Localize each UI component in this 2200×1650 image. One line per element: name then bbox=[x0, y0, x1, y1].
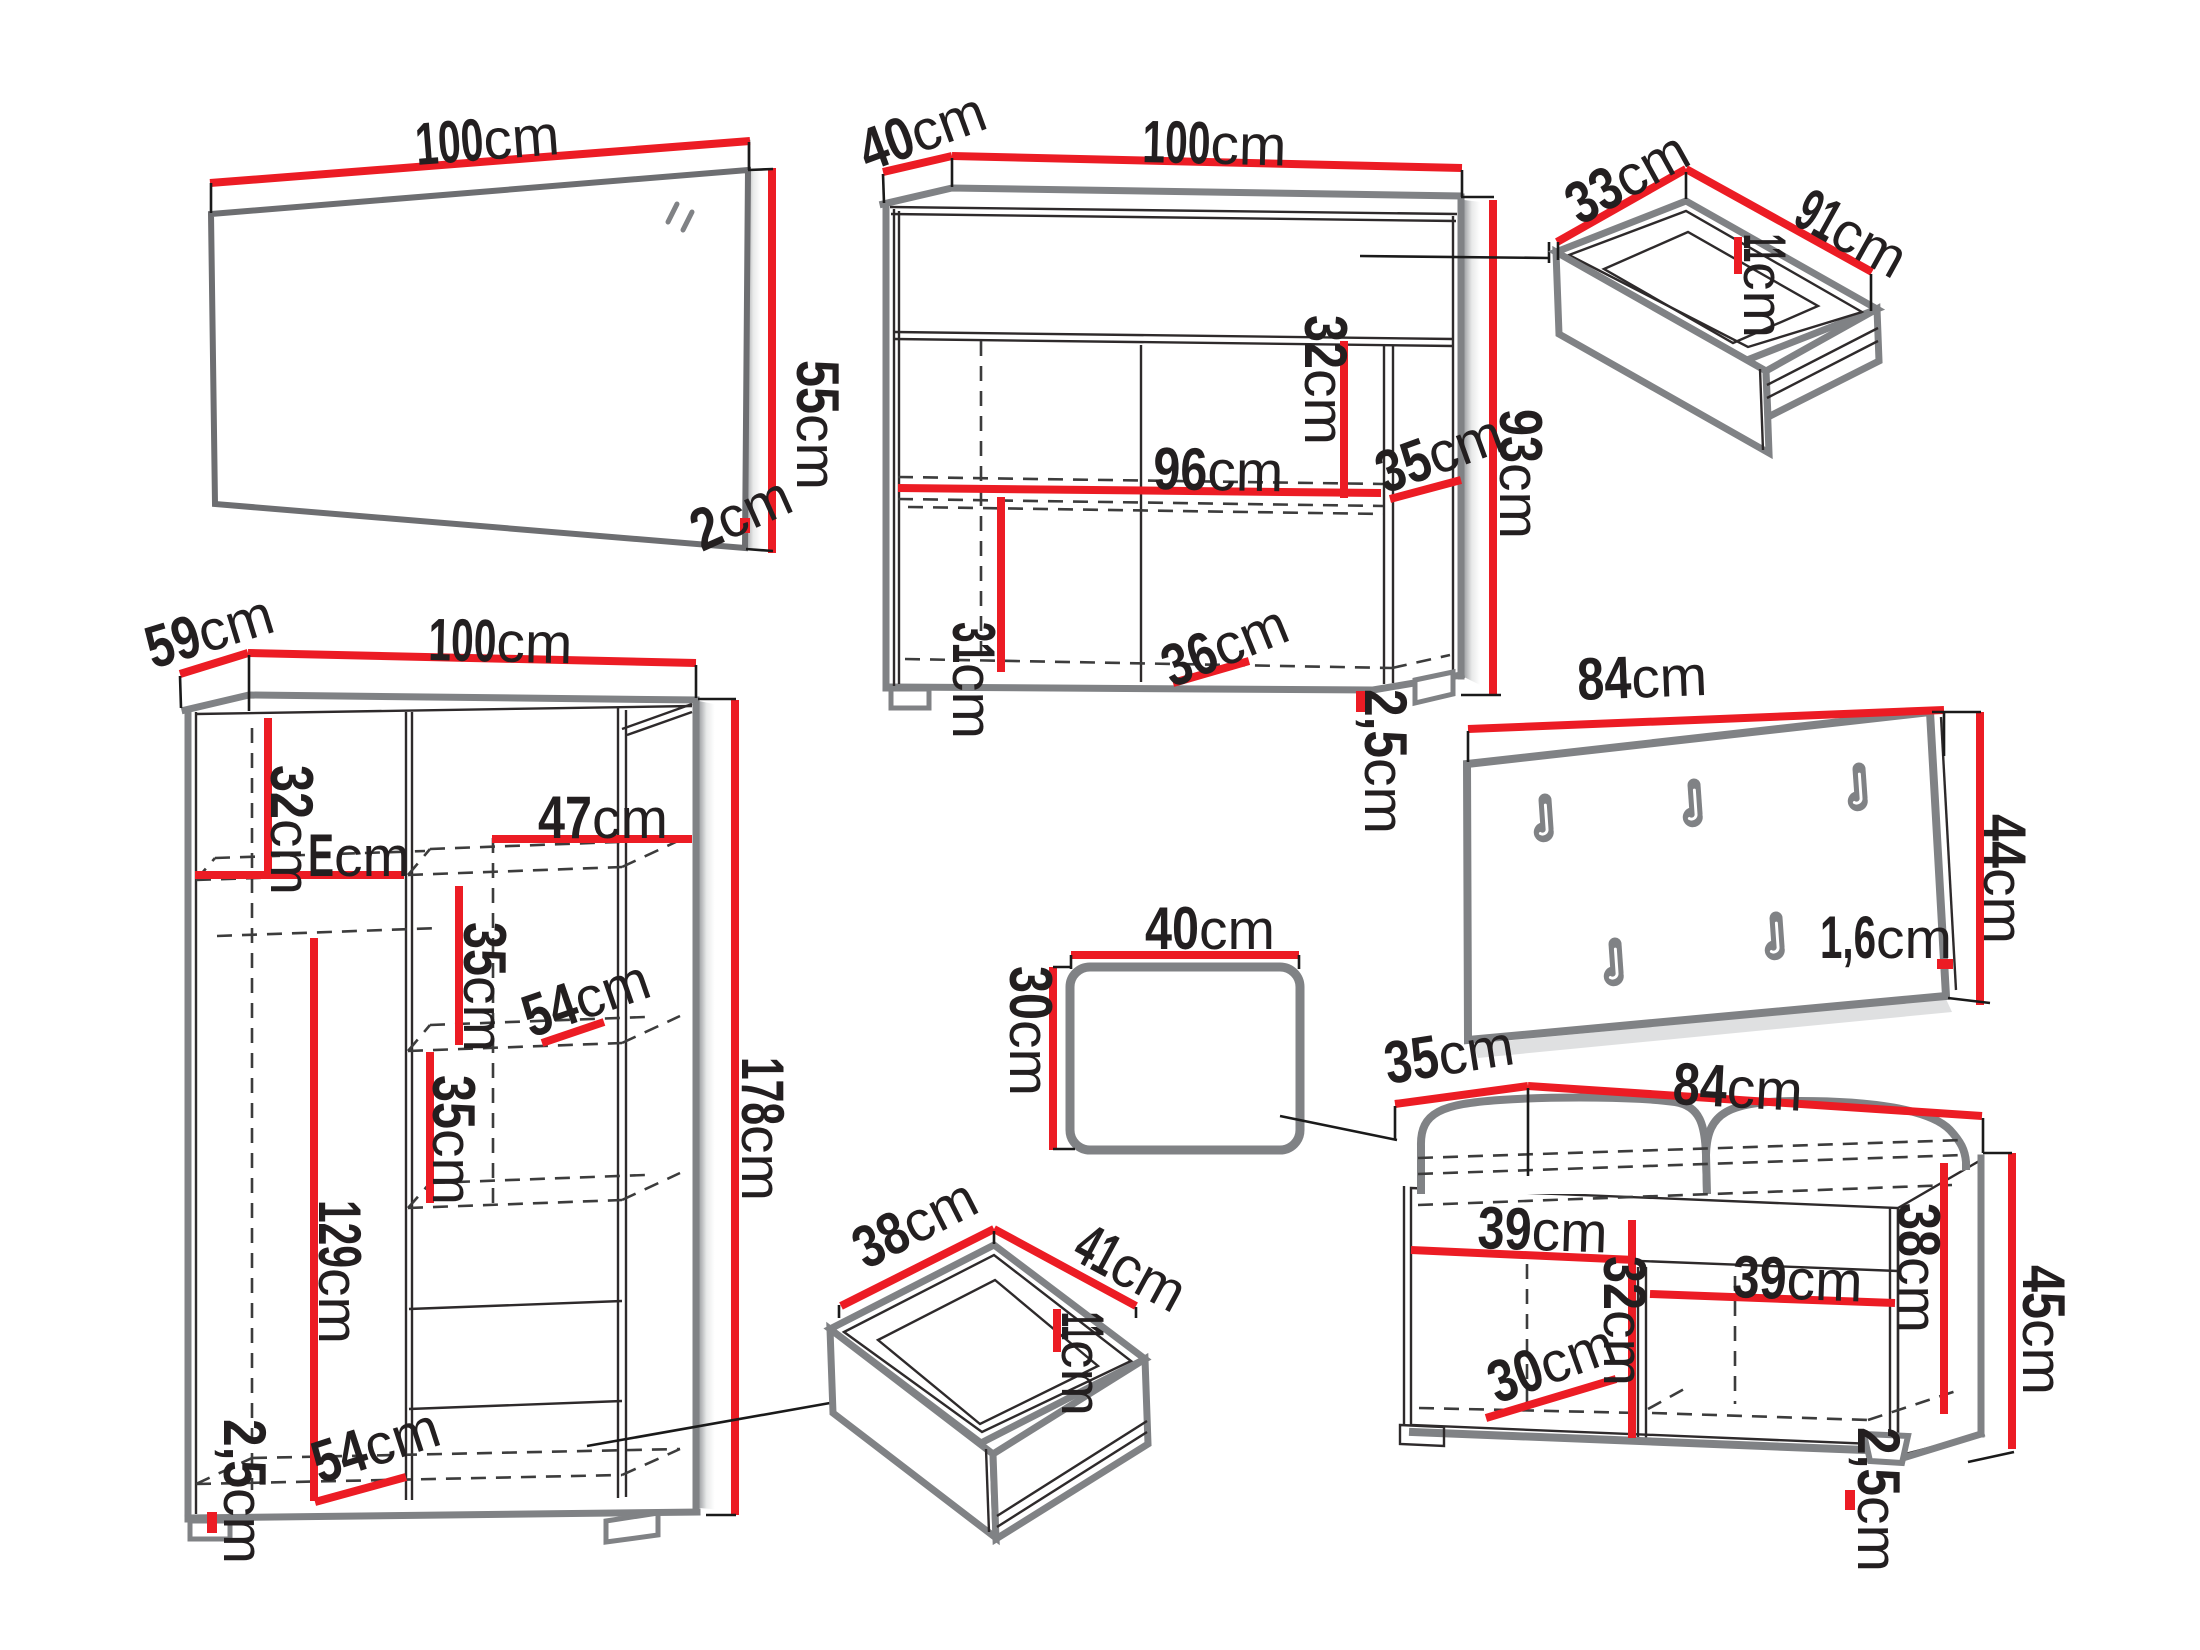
svg-text:93cm: 93cm bbox=[1487, 409, 1554, 539]
svg-text:39cm: 39cm bbox=[1732, 1243, 1864, 1314]
svg-text:178cm: 178cm bbox=[729, 1057, 796, 1201]
svg-text:11cm: 11cm bbox=[1731, 234, 1798, 338]
svg-text:40cm: 40cm bbox=[1145, 895, 1275, 962]
svg-text:31cm: 31cm bbox=[940, 622, 1007, 739]
svg-text:2,5cm: 2,5cm bbox=[1845, 1427, 1912, 1572]
svg-text:84cm: 84cm bbox=[1576, 641, 1709, 713]
svg-text:100cm: 100cm bbox=[428, 606, 573, 676]
svg-text:2,5cm: 2,5cm bbox=[1352, 689, 1419, 834]
svg-text:45cm: 45cm bbox=[2010, 1265, 2077, 1395]
svg-text:2,5cm: 2,5cm bbox=[211, 1419, 278, 1564]
svg-text:39cm: 39cm bbox=[1477, 1194, 1609, 1265]
svg-text:35cm: 35cm bbox=[420, 1075, 487, 1205]
svg-text:96cm: 96cm bbox=[1153, 435, 1284, 504]
svg-text:11cm: 11cm bbox=[1049, 1312, 1116, 1416]
svg-text:35cm: 35cm bbox=[451, 922, 518, 1052]
svg-text:100cm: 100cm bbox=[1142, 108, 1288, 178]
svg-text:44cm: 44cm bbox=[1971, 814, 2038, 944]
svg-text:1,6cm: 1,6cm bbox=[1820, 904, 1952, 971]
svg-text:129cm: 129cm bbox=[306, 1200, 373, 1344]
svg-text:100cm: 100cm bbox=[413, 100, 562, 178]
svg-text:38cm: 38cm bbox=[1885, 1203, 1952, 1333]
svg-text:47cm: 47cm bbox=[538, 784, 668, 851]
svg-text:32cm: 32cm bbox=[1292, 315, 1359, 445]
svg-text:55cm: 55cm bbox=[784, 360, 851, 490]
svg-text:84cm: 84cm bbox=[1671, 1050, 1804, 1124]
svg-text:Ecm: Ecm bbox=[308, 822, 410, 889]
svg-text:30cm: 30cm bbox=[997, 966, 1064, 1096]
